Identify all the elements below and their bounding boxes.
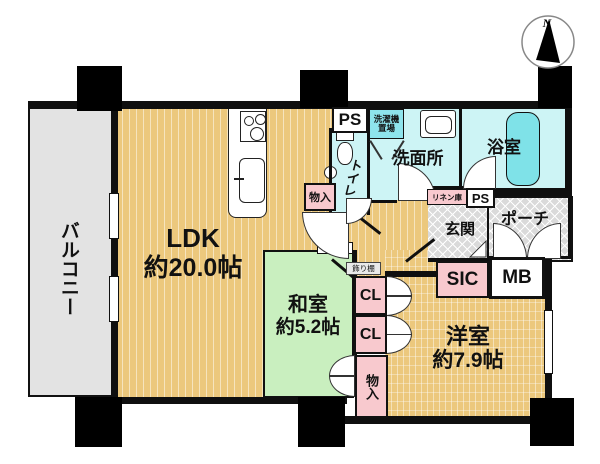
washitsu-area: 約5.2帖	[263, 317, 353, 339]
laundry-space-box: 洗濯機 置場	[369, 109, 404, 139]
south-storage-label: 物入	[362, 374, 381, 400]
pillar-bottom-left	[75, 397, 122, 447]
floor-plan-canvas: PS 洗濯機 置場 リネン庫 PS 物入 SIC MB CL CL 物入 飾り棚…	[0, 0, 600, 464]
ldk-area: 約20.0帖	[118, 254, 268, 283]
balcony-window	[109, 276, 119, 322]
mb-label: MB	[502, 267, 532, 289]
porch-label: ポーチ	[496, 211, 554, 229]
stove-burner	[244, 116, 254, 126]
ps-top-box: PS	[332, 107, 368, 133]
wall-washroom-bath	[459, 107, 462, 191]
genkan-label: 玄関	[438, 221, 482, 238]
hall-storage-box: 物入	[304, 183, 336, 211]
youshitsu-name: 洋室	[408, 324, 528, 349]
south-storage-box: 物入	[355, 355, 388, 418]
sic-label: SIC	[447, 269, 479, 291]
compass-n-text: N	[542, 16, 553, 30]
stove-icon	[240, 111, 266, 142]
sic-box: SIC	[436, 261, 489, 298]
cl-lower-label: CL	[360, 326, 381, 344]
linen-box: リネン庫	[427, 189, 467, 205]
faucet-icon	[234, 178, 244, 180]
wall-ldk-west	[111, 108, 118, 400]
pillar-bottom-right	[530, 398, 574, 446]
bathroom-label: 浴室	[482, 138, 526, 158]
kitchen-sink-icon	[239, 158, 265, 203]
ps-top-label: PS	[339, 110, 362, 130]
ldk-label: LDK 約20.0帖	[118, 224, 268, 283]
washroom-label: 洗面所	[380, 149, 456, 169]
north-compass-icon: N	[516, 10, 580, 74]
ps-mid-box: PS	[466, 188, 495, 208]
kazaridana-box: 飾り棚	[346, 262, 381, 275]
washitsu-name: 和室	[263, 294, 353, 317]
cl-upper-box: CL	[354, 276, 387, 315]
washitsu-label: 和室 約5.2帖	[263, 294, 353, 339]
washbasin-icon	[420, 110, 456, 138]
wall-bath-east	[565, 101, 572, 198]
ps-mid-label: PS	[472, 191, 489, 206]
pillar-top-center	[300, 70, 348, 108]
cl-upper-label: CL	[360, 287, 381, 305]
stove-burner	[255, 114, 266, 125]
cl-lower-box: CL	[354, 315, 387, 354]
washbasin-bowl	[425, 116, 452, 134]
wall-porch-east	[568, 196, 571, 258]
pillar-top-left	[77, 66, 122, 111]
wall-washroom-south	[369, 200, 397, 203]
mb-box: MB	[489, 257, 545, 299]
linen-label: リネン庫	[432, 192, 462, 203]
youshitsu-label: 洋室 約7.9帖	[408, 324, 528, 373]
kazaridana-label: 飾り棚	[352, 263, 375, 274]
pillar-bottom-center	[298, 397, 345, 447]
youshitsu-area: 約7.9帖	[408, 349, 528, 373]
hall-storage-label: 物入	[309, 189, 331, 205]
laundry-label-line2: 置場	[378, 124, 395, 133]
stove-burner	[250, 127, 264, 141]
ldk-name: LDK	[118, 224, 268, 254]
balcony-label: バルコニー	[57, 196, 79, 341]
genkan-step-icon	[469, 240, 487, 258]
youshitsu-window	[544, 310, 553, 374]
